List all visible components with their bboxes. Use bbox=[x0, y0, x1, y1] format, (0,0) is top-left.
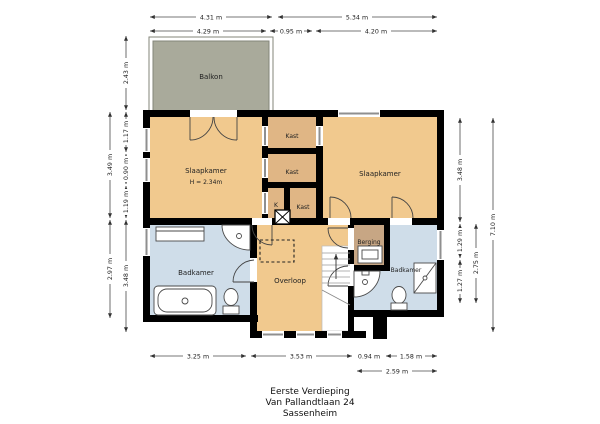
dimension-bottom-right-total: 2.59 m bbox=[357, 367, 437, 376]
dimension-label: 2.97 m bbox=[107, 258, 114, 280]
dimension-right-inner-mid: 1.29 m bbox=[456, 224, 465, 258]
dimension-right-inner-lower: 1.27 m bbox=[456, 260, 465, 303]
bathtub bbox=[154, 286, 216, 315]
floorplan-page: 4.31 m 5.34 m 4.29 m 0.95 m 4.20 m 3.25 … bbox=[0, 0, 600, 424]
dimension-top-outer-left: 4.31 m bbox=[150, 13, 272, 22]
label-overloop: Overloop bbox=[274, 277, 306, 285]
title-street: Van Pallandtlaan 24 bbox=[265, 398, 354, 408]
dimension-top-inner-right: 4.20 m bbox=[316, 27, 437, 36]
room-kast-bottom bbox=[290, 188, 316, 218]
floorplan-canvas: 4.31 m 5.34 m 4.29 m 0.95 m 4.20 m 3.25 … bbox=[0, 0, 600, 424]
dimension-left-outer-lower: 2.97 m bbox=[106, 220, 115, 318]
dimension-label: 2.59 m bbox=[386, 368, 408, 375]
vanity-sink bbox=[156, 227, 204, 241]
dimension-bottom-mid: 3.53 m bbox=[251, 352, 352, 361]
dimension-bottom-left: 3.25 m bbox=[150, 352, 246, 361]
label-kast-mid: Kast bbox=[286, 169, 300, 176]
dimension-bottom-right: 1.58 m bbox=[386, 352, 437, 361]
dimension-label: 1.58 m bbox=[400, 353, 422, 360]
dimension-bottom-small: 0.94 m bbox=[356, 352, 382, 361]
label-badkamer-left: Badkamer bbox=[178, 269, 214, 277]
label-slaapkamer-right: Slaapkamer bbox=[359, 170, 401, 178]
label-slaapkamer-left: Slaapkamer bbox=[185, 167, 227, 175]
dimension-left-inner-balcony: 2.43 m bbox=[122, 36, 131, 110]
dimension-left-inner-3: 1.19 m bbox=[122, 186, 131, 218]
toilet-left bbox=[223, 289, 239, 315]
dimension-left-inner-4: 3.48 m bbox=[122, 220, 131, 332]
label-kast-top: Kast bbox=[286, 133, 300, 140]
title-block: Eerste Verdieping Van Pallandtlaan 24 Sa… bbox=[265, 387, 354, 419]
dimension-left-inner-1: 1.17 m bbox=[122, 112, 131, 152]
room-kast-mid bbox=[268, 154, 316, 182]
dimension-left-outer-upper: 3.49 m bbox=[106, 112, 115, 218]
dimension-label: 4.31 m bbox=[200, 14, 222, 21]
dimension-label: 1.19 m bbox=[123, 191, 130, 213]
dimension-label: 0.94 m bbox=[358, 353, 380, 360]
dimension-label: 3.53 m bbox=[290, 353, 312, 360]
label-balkon: Balkon bbox=[199, 73, 223, 81]
dimension-label: 0.90 m bbox=[123, 158, 130, 180]
dimension-label: 4.20 m bbox=[365, 28, 387, 35]
dimension-right-inner-upper: 3.48 m bbox=[456, 118, 465, 222]
dimension-label: 7.10 m bbox=[490, 214, 497, 236]
label-badkamer-right: Badkamer bbox=[391, 267, 422, 274]
title-city: Sassenheim bbox=[283, 409, 337, 419]
dimension-label: 0.95 m bbox=[280, 28, 302, 35]
dimension-label: 1.29 m bbox=[457, 230, 464, 252]
dimension-top-outer-right: 5.34 m bbox=[278, 13, 437, 22]
dimension-right-outer-total: 7.10 m bbox=[489, 118, 498, 332]
title-level: Eerste Verdieping bbox=[270, 387, 349, 397]
toilet-right bbox=[391, 287, 407, 311]
dimension-top-inner-mid: 0.95 m bbox=[270, 27, 312, 36]
dimension-right-mid-total: 2.75 m bbox=[472, 224, 481, 303]
dimension-label: 3.48 m bbox=[123, 265, 130, 287]
dimension-label: 1.27 m bbox=[457, 270, 464, 292]
label-kast-bottom: Kast bbox=[297, 204, 311, 211]
balcony-door-opening bbox=[190, 110, 237, 117]
dimension-left-inner-2: 0.90 m bbox=[122, 154, 131, 184]
shaft-symbol bbox=[275, 210, 290, 224]
dimension-label: 3.49 m bbox=[107, 154, 114, 176]
label-ceiling-height: H = 2.34m bbox=[190, 179, 223, 186]
room-slaapkamer-right bbox=[323, 117, 437, 218]
dimension-label: 3.48 m bbox=[457, 159, 464, 181]
dimension-label: 2.75 m bbox=[473, 252, 480, 274]
dimension-label: 2.43 m bbox=[123, 62, 130, 84]
label-berging: Berging bbox=[357, 239, 380, 246]
dimension-label: 5.34 m bbox=[346, 14, 368, 21]
dimension-label: 4.29 m bbox=[197, 28, 219, 35]
dimension-label: 1.17 m bbox=[123, 121, 130, 143]
dimension-top-inner-left: 4.29 m bbox=[150, 27, 266, 36]
dimension-label: 3.25 m bbox=[187, 353, 209, 360]
washing-machine bbox=[358, 246, 382, 263]
